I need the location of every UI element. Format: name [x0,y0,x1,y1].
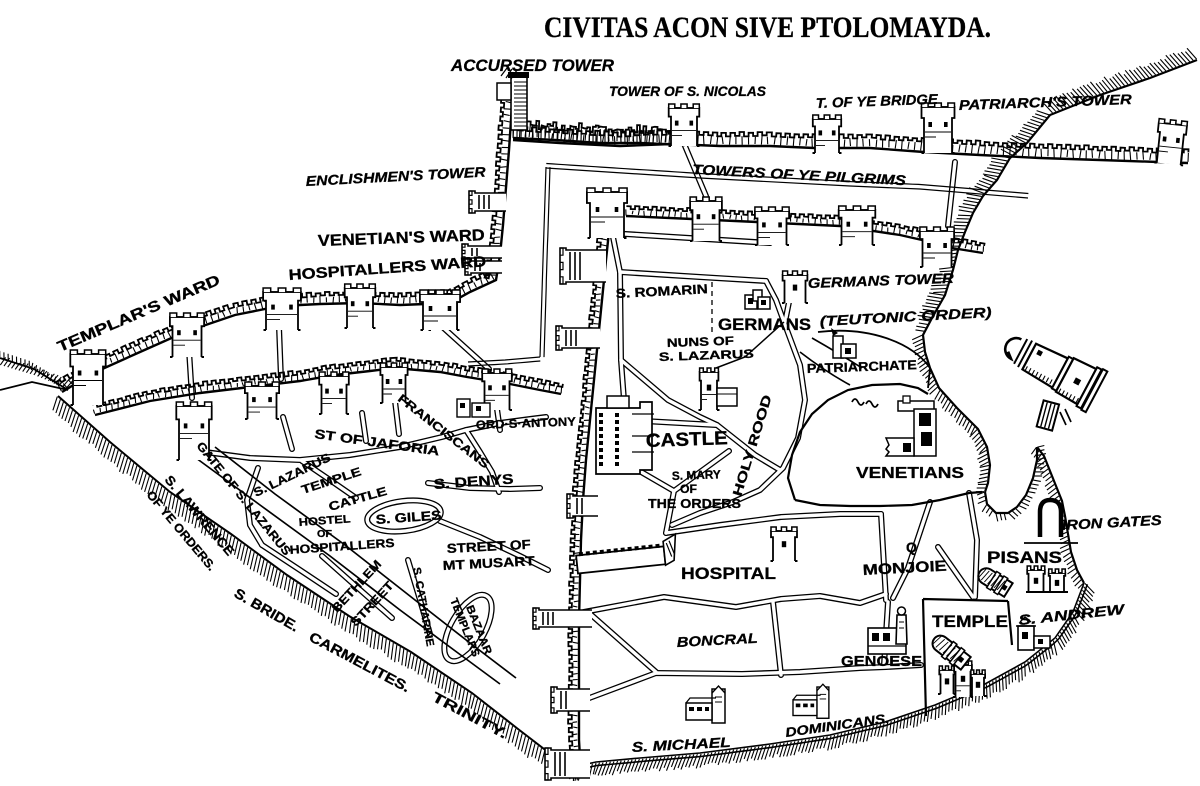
svg-text:GERMANS: GERMANS [718,315,811,334]
svg-text:ACCURSED TOWER: ACCURSED TOWER [450,56,615,75]
svg-text:HOSPITAL: HOSPITAL [681,564,776,583]
svg-text:THE ORDERS: THE ORDERS [648,496,741,511]
svg-text:CIVITAS ACON SIVE PTOLOMAYDA.: CIVITAS ACON SIVE PTOLOMAYDA. [544,11,991,44]
svg-text:OF: OF [680,482,697,496]
svg-text:TOWER OF S. NICOLAS: TOWER OF S. NICOLAS [609,83,767,99]
svg-text:S. MARY: S. MARY [672,467,721,483]
svg-text:TEMPLE: TEMPLE [932,612,1008,631]
svg-text:OF: OF [317,529,332,540]
svg-text:Q: Q [906,539,917,555]
svg-text:PISANS: PISANS [987,548,1062,567]
svg-text:CASTLE: CASTLE [645,428,728,452]
svg-text:GENOESE: GENOESE [841,653,922,670]
svg-text:VENETIANS: VENETIANS [856,465,964,482]
